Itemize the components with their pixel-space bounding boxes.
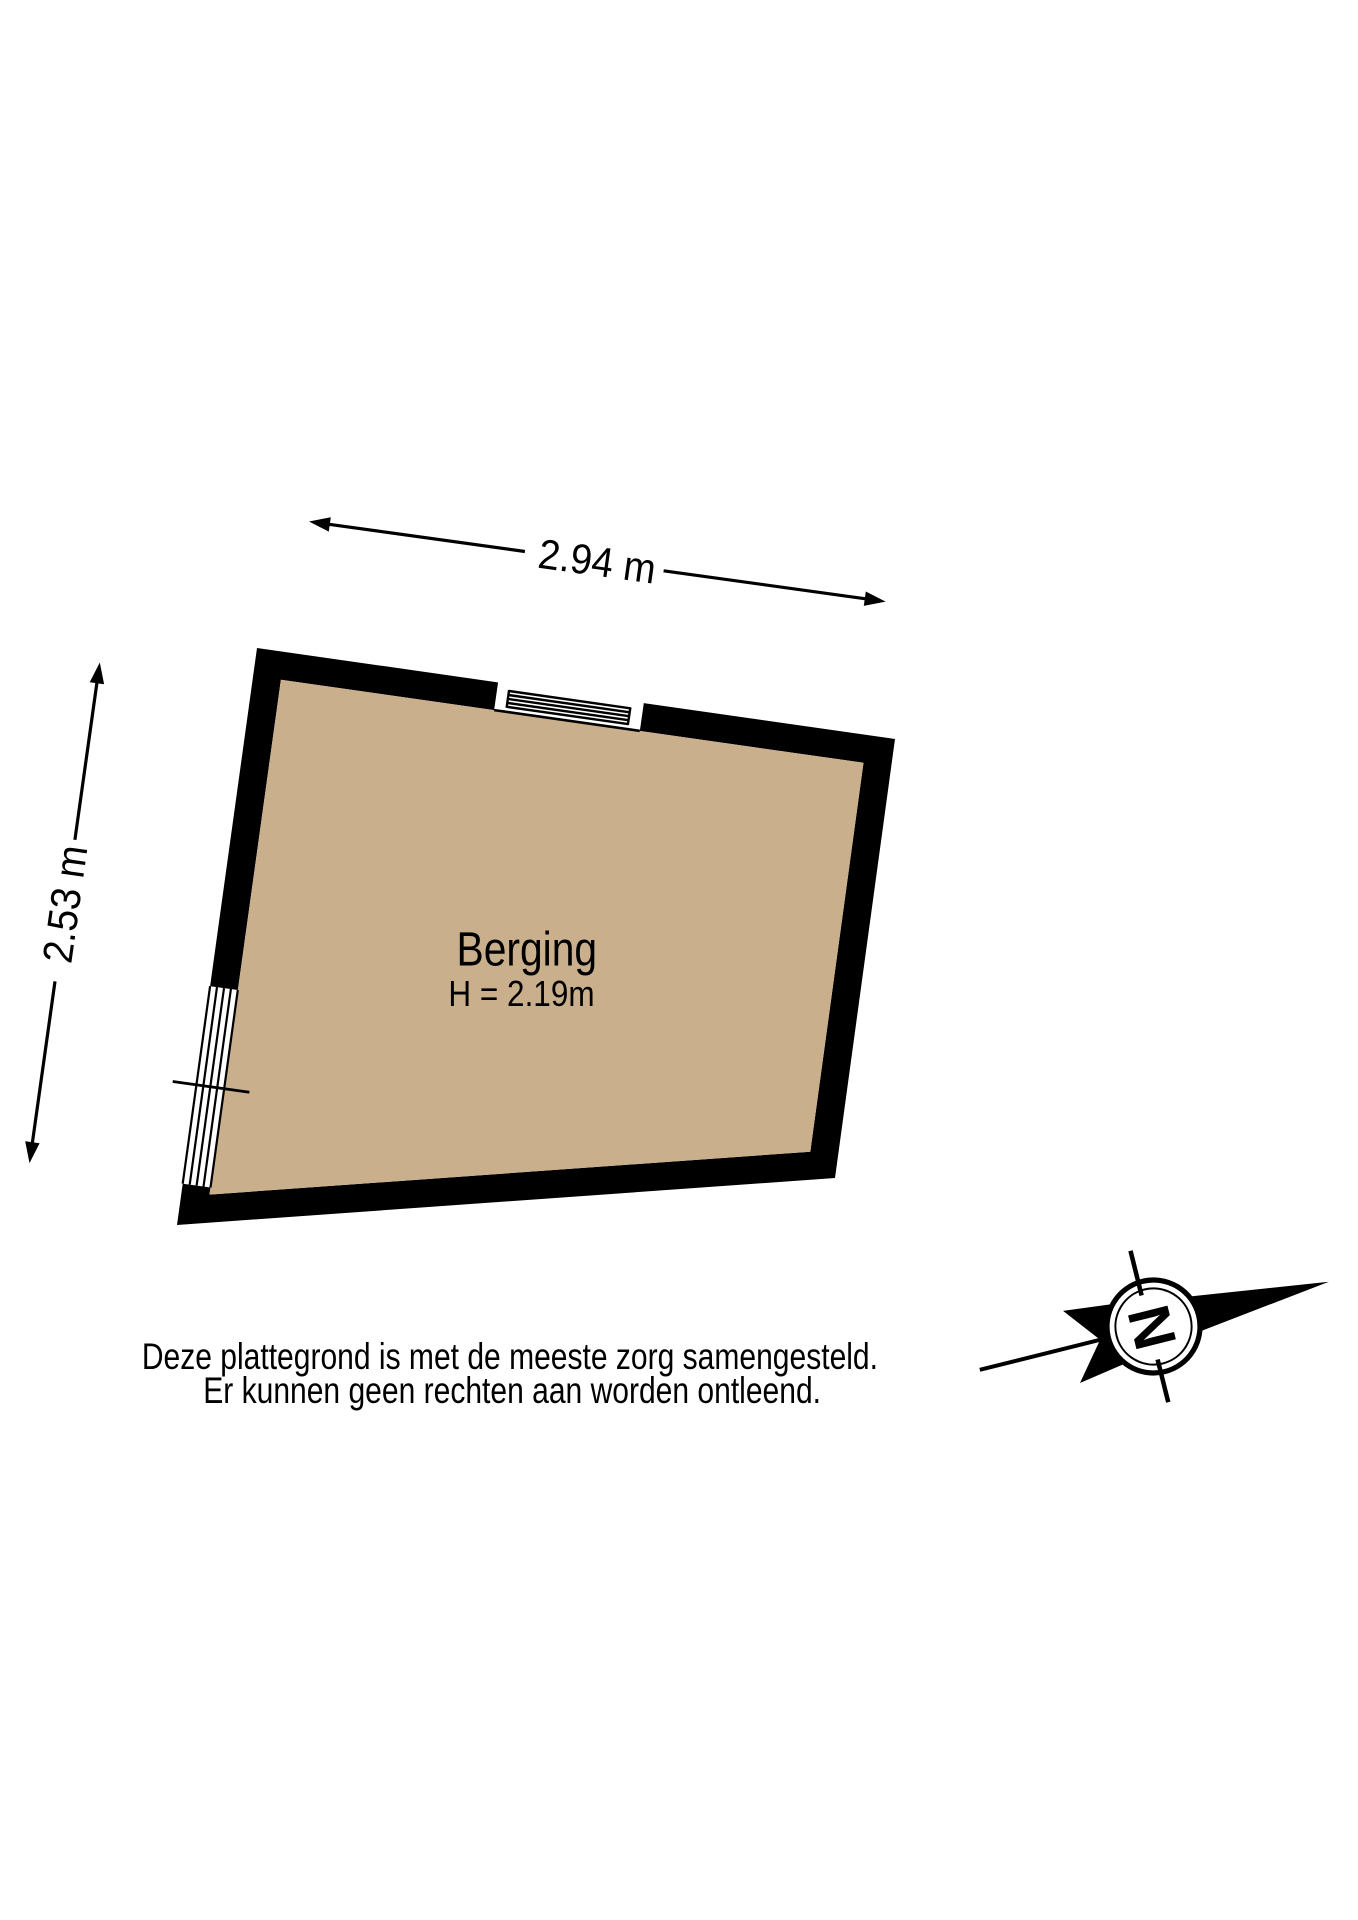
svg-text:Er kunnen geen rechten aan wor: Er kunnen geen rechten aan worden ontlee… <box>203 1370 821 1412</box>
svg-text:Berging: Berging <box>457 924 598 977</box>
svg-text:H = 2.19m: H = 2.19m <box>448 974 594 1014</box>
